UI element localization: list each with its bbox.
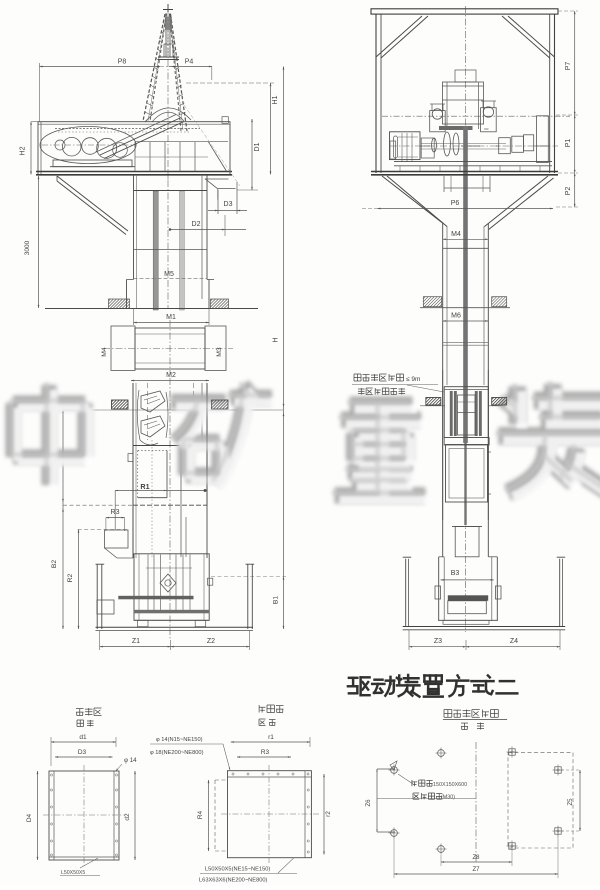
- svg-text:d1: d1: [79, 734, 87, 741]
- svg-text:L50X50X5: L50X50X5: [61, 870, 85, 876]
- svg-text:B2: B2: [51, 560, 58, 569]
- svg-text:≤ 9m: ≤ 9m: [406, 376, 420, 383]
- svg-text:L63X63X6(NE200~NE800): L63X63X6(NE200~NE800): [199, 878, 268, 884]
- svg-text:φ 14(N15~NE150): φ 14(N15~NE150): [156, 737, 203, 743]
- svg-text:Z5: Z5: [567, 798, 574, 806]
- svg-text:R4: R4: [197, 810, 204, 819]
- svg-text:3000: 3000: [24, 240, 31, 255]
- svg-text:P1: P1: [565, 139, 572, 148]
- svg-text:B1: B1: [273, 596, 280, 605]
- svg-text:M3: M3: [216, 347, 223, 357]
- svg-text:r1: r1: [268, 734, 274, 741]
- svg-text:H: H: [273, 337, 280, 342]
- svg-text:M4: M4: [451, 231, 461, 238]
- svg-text:Z7: Z7: [472, 867, 480, 873]
- svg-text:Z1: Z1: [132, 638, 140, 645]
- svg-text:φ 18(NE200~NE800): φ 18(NE200~NE800): [150, 750, 204, 756]
- svg-text:(M30): (M30): [441, 795, 455, 801]
- svg-text:D3: D3: [78, 749, 87, 756]
- svg-text:D3: D3: [224, 201, 233, 208]
- svg-text:R3: R3: [261, 749, 270, 756]
- svg-text:B3: B3: [451, 570, 460, 577]
- svg-text:M5: M5: [164, 271, 174, 278]
- svg-text:M4: M4: [101, 347, 108, 357]
- svg-text:Z4: Z4: [510, 638, 518, 645]
- svg-text:r2: r2: [325, 811, 332, 817]
- svg-text:P4: P4: [185, 59, 194, 66]
- svg-text:D2: D2: [192, 221, 201, 228]
- svg-text:R1: R1: [140, 482, 149, 491]
- svg-text:Z2: Z2: [207, 638, 215, 645]
- svg-text:M1: M1: [166, 314, 176, 321]
- svg-text:L50X50X5(NE15~NE150): L50X50X5(NE15~NE150): [205, 867, 270, 873]
- svg-text:H1: H1: [272, 95, 279, 104]
- svg-text:Z8: Z8: [472, 855, 480, 861]
- svg-text:d2: d2: [124, 813, 131, 821]
- svg-text:P8: P8: [118, 59, 127, 66]
- svg-text:P7: P7: [565, 62, 572, 71]
- svg-text:H2: H2: [20, 146, 27, 155]
- svg-text:D4: D4: [26, 813, 33, 822]
- svg-text:M6: M6: [451, 313, 461, 320]
- svg-text:M2: M2: [166, 372, 176, 379]
- svg-text:φ 14: φ 14: [124, 757, 137, 764]
- svg-text:R2: R2: [67, 573, 74, 582]
- svg-text:Z3: Z3: [434, 638, 442, 645]
- svg-text:Z6: Z6: [365, 799, 372, 807]
- svg-text:D1: D1: [254, 142, 261, 151]
- svg-text:150X150X600: 150X150X600: [433, 782, 467, 788]
- svg-text:P6: P6: [451, 200, 460, 207]
- svg-text:P2: P2: [565, 187, 572, 196]
